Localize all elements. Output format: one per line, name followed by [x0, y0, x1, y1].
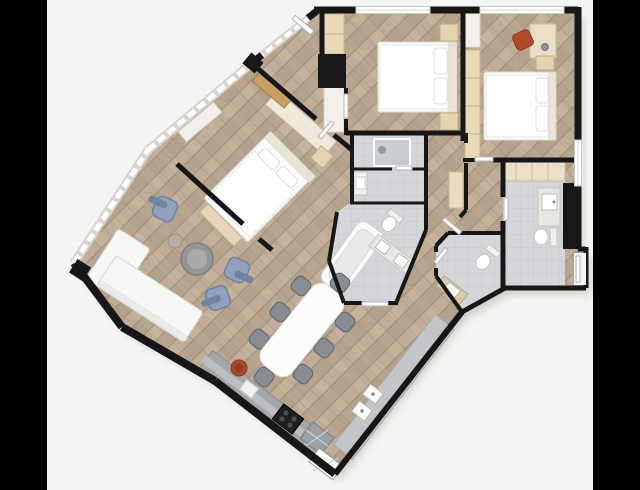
floor-plan-svg — [0, 0, 640, 490]
burner-4 — [287, 422, 292, 427]
bedroom3-pillow-2 — [536, 106, 548, 131]
duct-shaft — [563, 183, 578, 249]
door-main-bath — [362, 302, 388, 306]
burner-3 — [279, 416, 284, 421]
corridor-closet — [449, 172, 463, 208]
column-entry — [318, 54, 346, 88]
upper-bath-sink-basin — [356, 177, 365, 189]
door-ensuite — [504, 198, 508, 220]
side-table — [168, 234, 182, 248]
bedroom3-nightstand — [536, 56, 554, 70]
burner-2 — [291, 416, 296, 421]
door-bedroom3 — [475, 157, 493, 161]
kitchen-sink-2-drain — [371, 392, 375, 396]
ensuite-faucet — [553, 201, 556, 204]
bedroom2-nightstand-2 — [440, 113, 458, 130]
ensuite-toilet-tank — [550, 228, 557, 246]
ensuite-toilet-bowl — [534, 229, 548, 245]
coffee-table-top — [187, 249, 207, 269]
door-terrace — [576, 256, 580, 282]
bedroom3-bed-headboard — [549, 72, 556, 140]
bedroom3-desk — [530, 24, 556, 58]
burner-1 — [283, 410, 288, 415]
kitchen-sink-1-drain — [360, 409, 364, 413]
pillarbox-right — [593, 0, 640, 490]
pillarbox-left — [0, 0, 47, 490]
bedroom2-bed-headboard — [449, 42, 457, 112]
bedroom3-pillow-1 — [536, 78, 548, 103]
door-bedroom2 — [344, 94, 348, 118]
bedroom3-closet — [465, 13, 480, 47]
floor-plan-stage — [0, 0, 640, 490]
bedroom2-pillow-2 — [434, 78, 447, 104]
bedroom2-pillow-1 — [434, 48, 447, 74]
kitchen-red-bowl-inner — [235, 364, 244, 373]
shower-drain — [378, 146, 386, 154]
bedroom2-nightstand-1 — [440, 24, 458, 41]
bedroom3-lamp — [542, 44, 549, 51]
door-upper-bath — [396, 166, 412, 170]
